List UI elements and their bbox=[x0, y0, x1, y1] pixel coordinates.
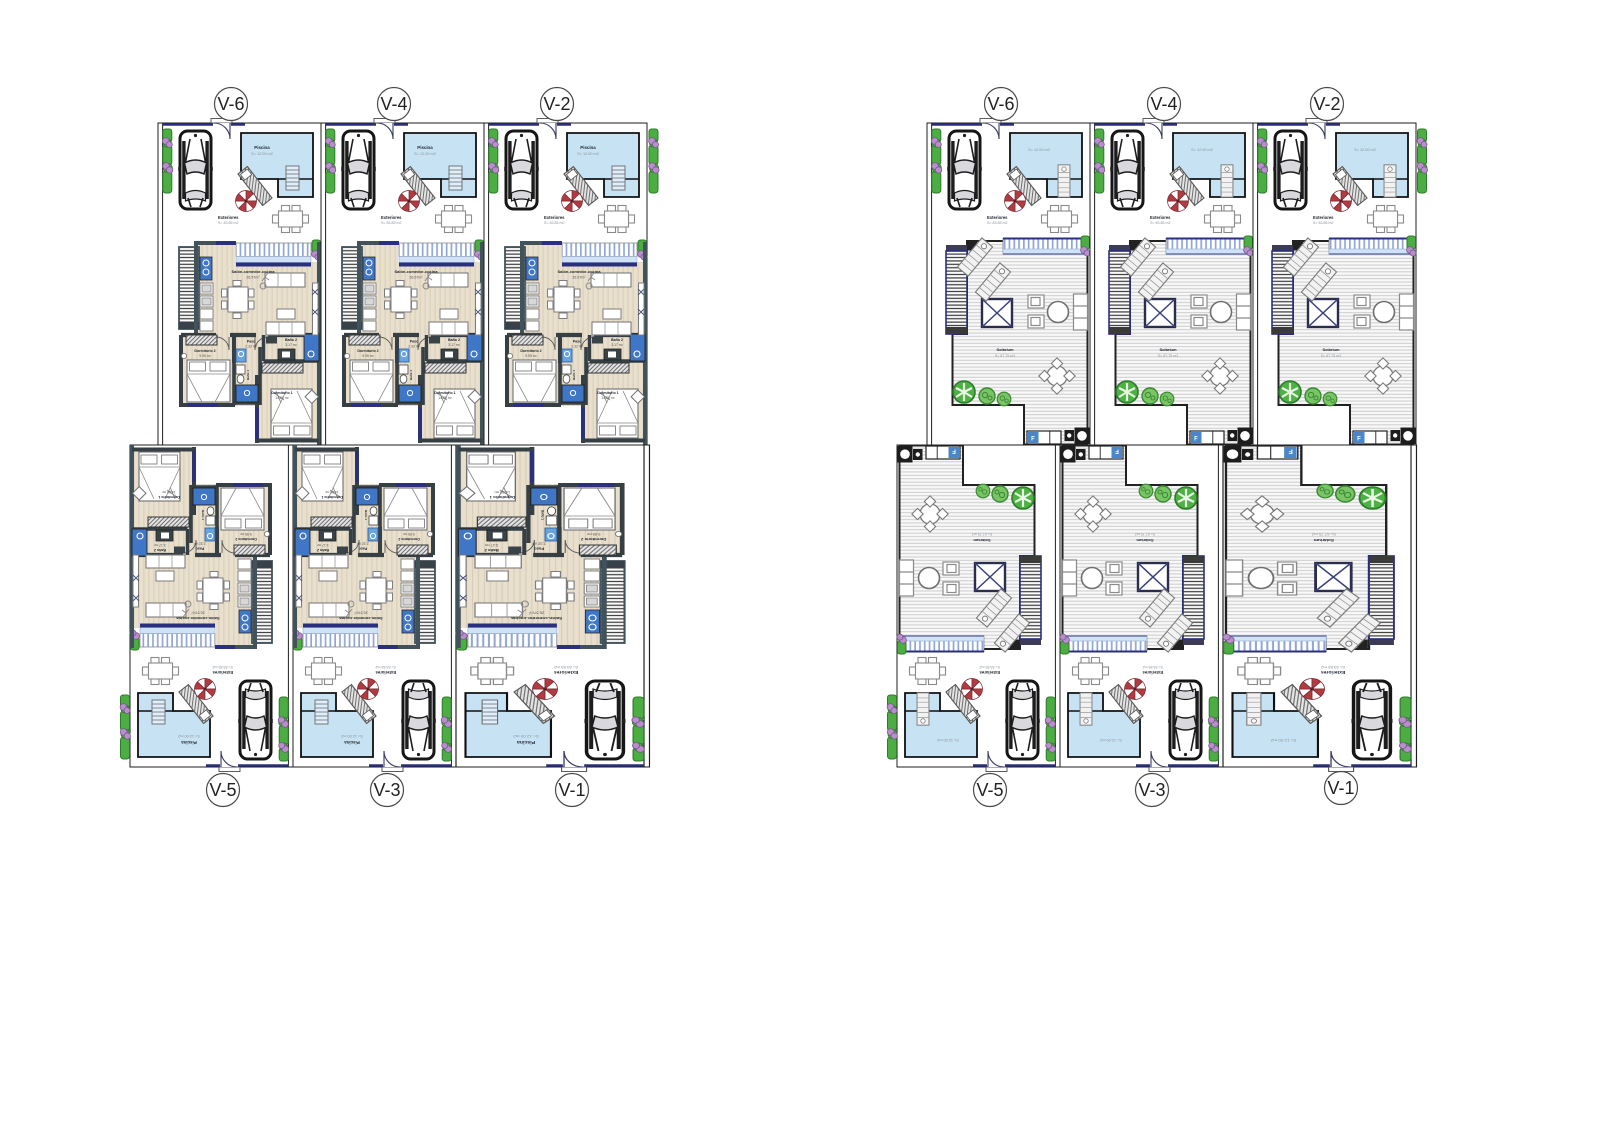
svg-text:V-5: V-5 bbox=[209, 780, 236, 800]
svg-text:V-6: V-6 bbox=[217, 94, 244, 114]
svg-text:V-3: V-3 bbox=[373, 780, 400, 800]
svg-text:V-5: V-5 bbox=[976, 780, 1003, 800]
svg-text:V-3: V-3 bbox=[1138, 780, 1165, 800]
svg-text:V-4: V-4 bbox=[1150, 94, 1177, 114]
svg-text:V-6: V-6 bbox=[987, 94, 1014, 114]
svg-text:V-2: V-2 bbox=[1313, 94, 1340, 114]
svg-text:V-1: V-1 bbox=[558, 780, 585, 800]
svg-text:V-2: V-2 bbox=[543, 94, 570, 114]
svg-text:V-1: V-1 bbox=[1327, 778, 1354, 798]
svg-text:V-4: V-4 bbox=[380, 94, 407, 114]
